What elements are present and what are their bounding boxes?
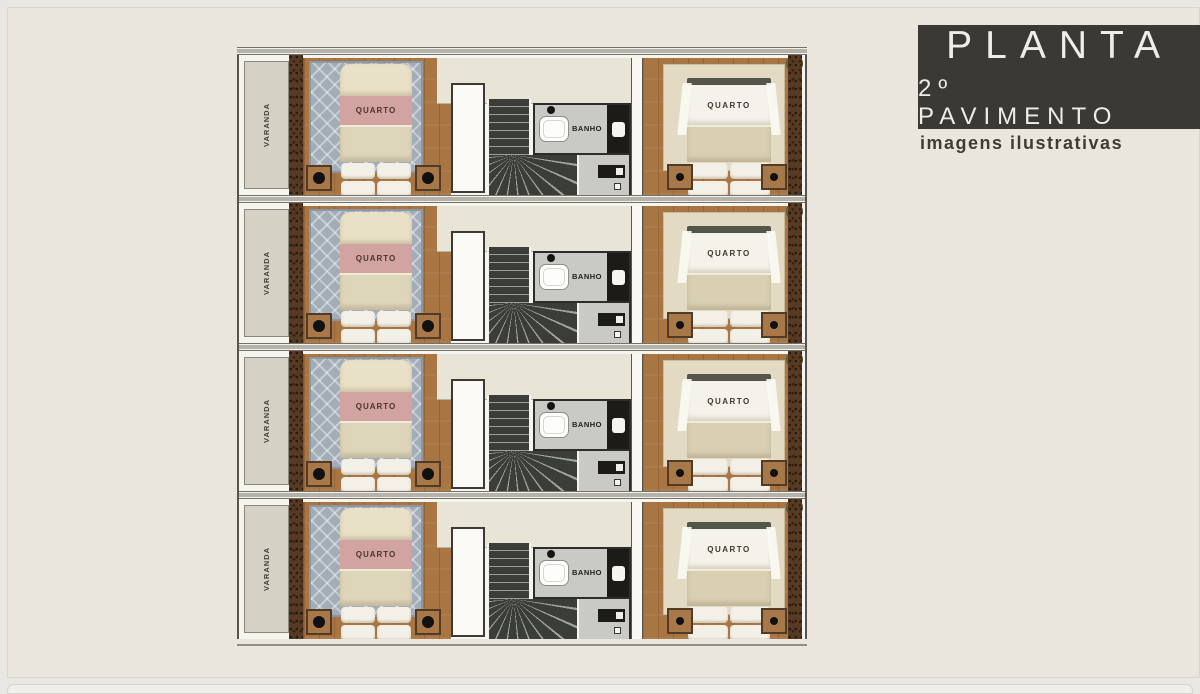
varanda-balcony: VARANDA — [244, 61, 289, 189]
bathroom-vanity — [607, 549, 629, 597]
nightstand — [667, 608, 693, 634]
bedroom-left-label: QUARTO — [356, 106, 397, 115]
bed-sheet: QUARTO — [687, 233, 771, 273]
nightstand — [306, 609, 332, 635]
staircase-winder — [487, 599, 577, 639]
bathroom-vanity — [607, 401, 629, 449]
bed-sheet — [340, 273, 412, 310]
bedroom-right-label: QUARTO — [707, 545, 751, 554]
door-knob-icon — [614, 479, 621, 486]
varanda-label: VARANDA — [262, 251, 271, 295]
bed-sheet — [340, 421, 412, 458]
bed-sheet — [340, 569, 412, 606]
bed-pillows — [340, 606, 412, 639]
door-knob-icon — [614, 183, 621, 190]
nightstand — [306, 461, 332, 487]
bed-pillows — [340, 458, 412, 491]
bedroom-left-label: QUARTO — [356, 254, 397, 263]
partition-wall — [631, 354, 643, 491]
nightstand — [415, 609, 441, 635]
bed-duvet — [340, 508, 412, 540]
varanda-balcony: VARANDA — [244, 505, 289, 633]
varanda-label: VARANDA — [262, 547, 271, 591]
sink-icon — [612, 122, 625, 137]
bathroom: BANHO — [533, 547, 631, 599]
floorplan-unit: VARANDA QUARTO BANHO — [239, 55, 805, 195]
bathroom: BANHO — [533, 251, 631, 303]
plan-title: PLANTA — [946, 24, 1173, 68]
headboard — [687, 522, 771, 529]
bed-sheet: QUARTO — [687, 529, 771, 569]
closet — [451, 379, 485, 489]
right-wall-strip — [788, 203, 802, 343]
nightstand — [306, 165, 332, 191]
bathroom-lower-floor — [579, 451, 631, 491]
bed-left: QUARTO — [340, 212, 412, 343]
floorplan-unit: VARANDA QUARTO BANHO — [239, 203, 805, 343]
bed-pillows — [687, 162, 771, 195]
faucet-icon — [547, 550, 555, 558]
headboard — [687, 374, 771, 381]
bathroom-label: BANHO — [572, 272, 602, 281]
bed-pink-blanket: QUARTO — [340, 392, 412, 421]
bed-pillows — [687, 458, 771, 491]
staircase — [487, 99, 531, 155]
bed-duvet — [340, 212, 412, 244]
left-wall-strip — [289, 203, 303, 343]
left-wall-strip — [289, 351, 303, 491]
nightstand — [667, 312, 693, 338]
floor-divider — [239, 491, 805, 499]
bedroom-right-label: QUARTO — [707, 397, 751, 406]
bathroom-lower-floor — [579, 155, 631, 195]
bathroom: BANHO — [533, 103, 631, 155]
staircase-winder — [487, 155, 577, 195]
nightstand — [667, 460, 693, 486]
units-container: VARANDA QUARTO BANHO — [237, 55, 807, 639]
disclaimer-text: imagens ilustrativas — [920, 133, 1123, 154]
bathroom: BANHO — [533, 399, 631, 451]
sink-icon — [612, 418, 625, 433]
bed-right: QUARTO — [687, 522, 771, 639]
closet — [451, 527, 485, 637]
right-wall-strip — [788, 351, 802, 491]
bathtub — [539, 412, 569, 438]
bed-right: QUARTO — [687, 374, 771, 491]
varanda-balcony: VARANDA — [244, 357, 289, 485]
staircase-winder — [487, 303, 577, 343]
page: VARANDA QUARTO BANHO — [0, 0, 1200, 694]
bathroom-counter — [598, 609, 625, 622]
bathroom-counter — [598, 313, 625, 326]
header-box: PLANTA 2º PAVIMENTO — [918, 25, 1200, 129]
bottom-card-edge — [7, 684, 1193, 694]
bed-duvet — [340, 360, 412, 392]
door-knob-icon — [614, 627, 621, 634]
floor-divider — [239, 195, 805, 203]
nightstand — [667, 164, 693, 190]
left-wall-strip — [289, 499, 303, 639]
closet — [451, 83, 485, 193]
door-knob-icon — [614, 331, 621, 338]
bedroom-right-label: QUARTO — [707, 249, 751, 258]
partition-wall — [631, 206, 643, 343]
bed-right: QUARTO — [687, 78, 771, 195]
bathtub — [539, 560, 569, 586]
bed-pillows — [687, 310, 771, 343]
nightstand — [761, 312, 787, 338]
headboard — [687, 226, 771, 233]
staircase — [487, 543, 531, 599]
bed-pillows — [340, 310, 412, 343]
bed-right: QUARTO — [687, 226, 771, 343]
headboard — [687, 78, 771, 85]
bedroom-left-label: QUARTO — [356, 550, 397, 559]
sink-icon — [612, 566, 625, 581]
nightstand — [761, 608, 787, 634]
bed-sheet — [340, 125, 412, 162]
bed-pillows — [687, 606, 771, 639]
bedroom-right-label: QUARTO — [707, 101, 751, 110]
bathroom-lower-floor — [579, 303, 631, 343]
varanda-label: VARANDA — [262, 103, 271, 147]
bed-left: QUARTO — [340, 64, 412, 195]
bathtub — [539, 264, 569, 290]
bathroom-lower-floor — [579, 599, 631, 639]
floor-plan: VARANDA QUARTO BANHO — [237, 47, 807, 646]
bed-blanket — [687, 273, 771, 310]
right-wall-strip — [788, 55, 802, 195]
bathroom-vanity — [607, 105, 629, 153]
bathroom-counter — [598, 461, 625, 474]
left-wall-strip — [289, 55, 303, 195]
bed-pink-blanket: QUARTO — [340, 96, 412, 125]
nightstand — [306, 313, 332, 339]
bathroom-counter — [598, 165, 625, 178]
staircase — [487, 247, 531, 303]
sink-icon — [612, 270, 625, 285]
bathroom-vanity — [607, 253, 629, 301]
faucet-icon — [547, 254, 555, 262]
bed-blanket — [687, 569, 771, 606]
nightstand — [415, 313, 441, 339]
nightstand — [761, 460, 787, 486]
floor-divider — [239, 343, 805, 351]
bathroom-label: BANHO — [572, 124, 602, 133]
bed-pink-blanket: QUARTO — [340, 244, 412, 273]
bed-left: QUARTO — [340, 508, 412, 639]
floorplan-unit: VARANDA QUARTO BANHO — [239, 351, 805, 491]
bed-blanket — [687, 125, 771, 162]
faucet-icon — [547, 106, 555, 114]
nightstand — [415, 165, 441, 191]
partition-wall — [631, 502, 643, 639]
plan-top-wall — [237, 47, 807, 55]
plan-baseline — [237, 644, 807, 646]
bathroom-label: BANHO — [572, 420, 602, 429]
varanda-balcony: VARANDA — [244, 209, 289, 337]
bathtub — [539, 116, 569, 142]
bed-pillows — [340, 162, 412, 195]
partition-wall — [631, 58, 643, 195]
plan-subtitle: 2º PAVIMENTO — [918, 75, 1167, 131]
nightstand — [415, 461, 441, 487]
bed-left: QUARTO — [340, 360, 412, 491]
floorplan-unit: VARANDA QUARTO BANHO — [239, 499, 805, 639]
bed-sheet: QUARTO — [687, 381, 771, 421]
staircase-winder — [487, 451, 577, 491]
staircase — [487, 395, 531, 451]
nightstand — [761, 164, 787, 190]
faucet-icon — [547, 402, 555, 410]
varanda-label: VARANDA — [262, 399, 271, 443]
bed-blanket — [687, 421, 771, 458]
bed-duvet — [340, 64, 412, 96]
bed-sheet: QUARTO — [687, 85, 771, 125]
right-wall-strip — [788, 499, 802, 639]
bedroom-left-label: QUARTO — [356, 402, 397, 411]
bathroom-label: BANHO — [572, 568, 602, 577]
bed-pink-blanket: QUARTO — [340, 540, 412, 569]
closet — [451, 231, 485, 341]
